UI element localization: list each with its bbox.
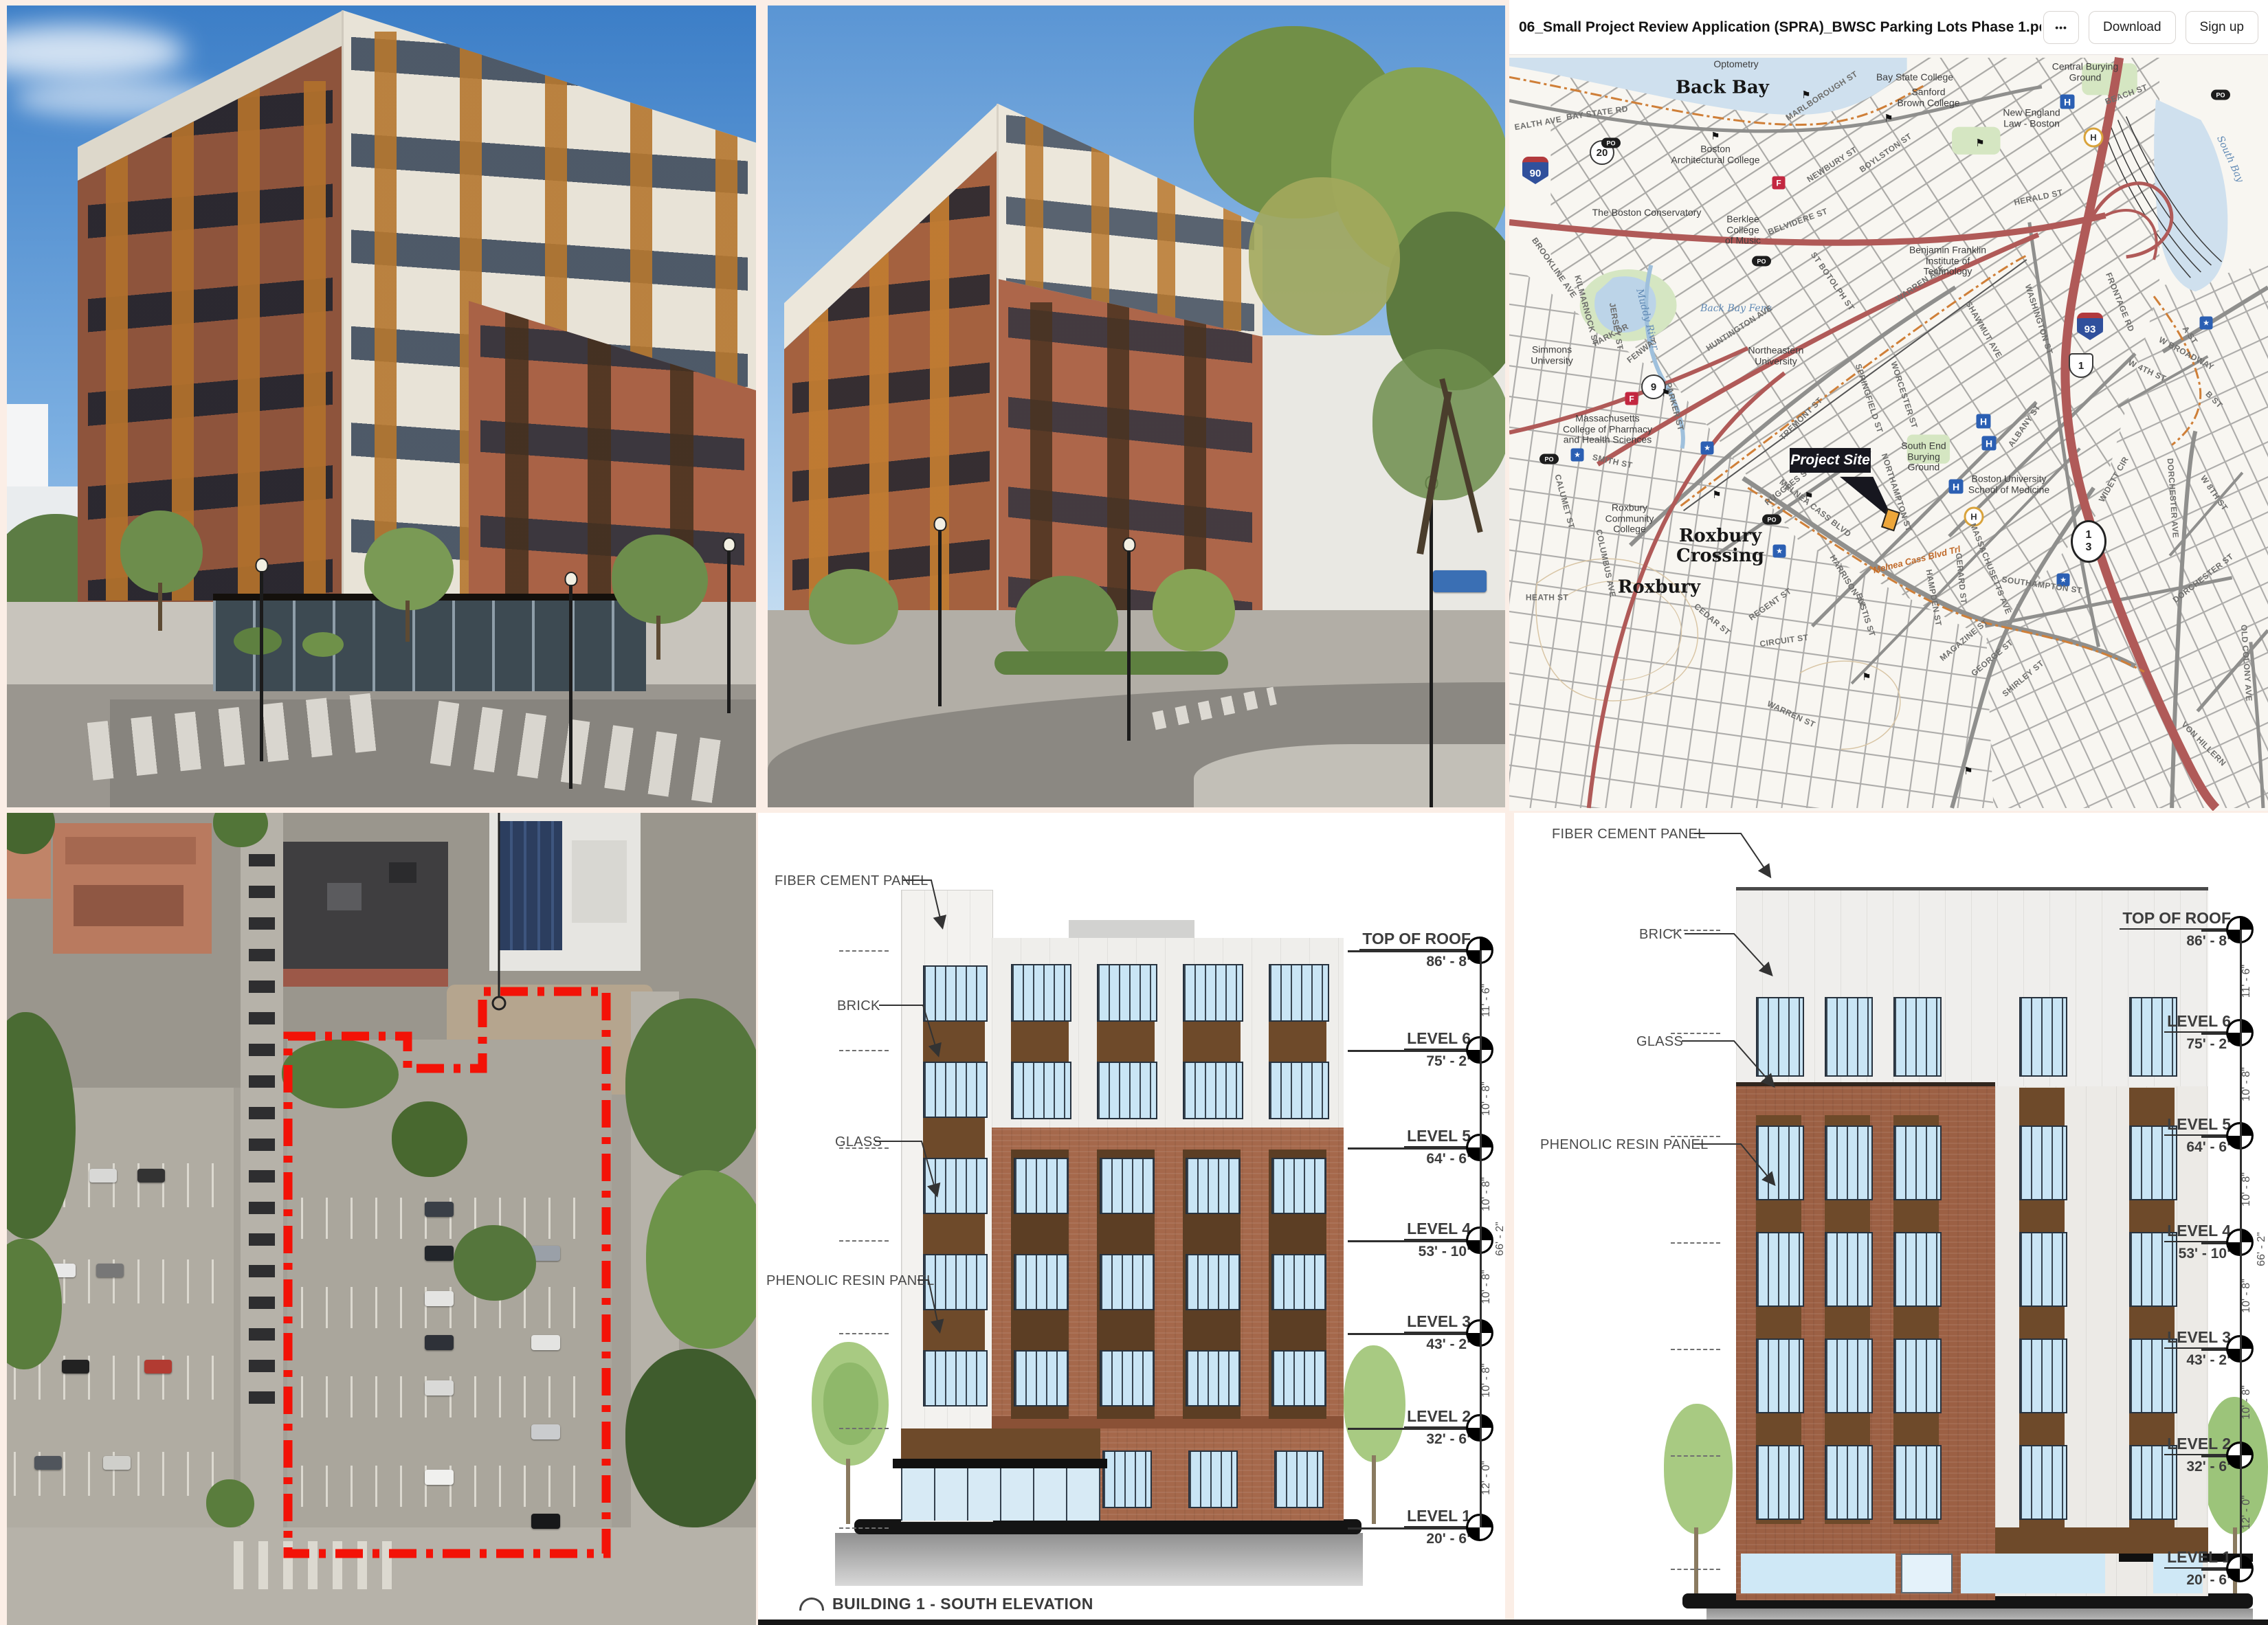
map-label: Massachusetts College of Pharmacy and He…: [1563, 413, 1652, 445]
map-label: EUSTIS ST: [1854, 592, 1876, 638]
level-annotations: TOP OF ROOF86' - 8"11' - 6"LEVEL 675' - …: [758, 813, 1505, 1625]
level-label: LEVEL 2: [2164, 1435, 2234, 1455]
map-label: KILMARNOCK ST: [1572, 274, 1600, 347]
project-site-callout: Project Site: [1790, 448, 1871, 473]
map-label: NEWBURY ST: [1805, 145, 1859, 184]
map-label: WORCESTER ST: [1889, 361, 1919, 430]
map-label: Roxbury Community College: [1605, 502, 1654, 535]
street-lamp: [1430, 486, 1433, 807]
overall-height-dim: 66' - 2": [2256, 1232, 2268, 1266]
pdf-title: 06_Small Project Review Application (SPR…: [1519, 19, 2041, 36]
map-label: JERSEY ST: [1607, 302, 1624, 351]
map-label: COLUMBUS AVE: [1594, 528, 1617, 598]
map-label: WASHINGTON ST: [2023, 283, 2054, 355]
floor-height-dim: 10' - 8": [2241, 1172, 2253, 1207]
map-label: ST BOTOLPH ST: [1809, 251, 1856, 313]
street-lamp: [727, 548, 731, 713]
map-label: TREMONT ST: [1778, 396, 1824, 442]
street-lamp: [1127, 548, 1131, 741]
detail-marker-icon: [799, 1598, 824, 1611]
overall-height-dim: 66' - 2": [1494, 1222, 1505, 1256]
ellipsis-icon: •••: [2055, 22, 2067, 33]
floor-height-dim: 10' - 8": [1480, 1363, 1493, 1398]
window-bottom-edge: [758, 1620, 2268, 1625]
map-label: Back Bay Fens: [1700, 304, 1772, 315]
street-lamp: [938, 528, 942, 706]
map-label: Sanford Brown College: [1897, 87, 1959, 108]
map-label: HEATH ST: [1526, 593, 1568, 602]
map-label: Boston University School of Medicine: [1968, 473, 2049, 495]
level-annotations: TOP OF ROOF86' - 8"11' - 6"LEVEL 675' - …: [1514, 813, 2268, 1625]
map-label: CIRCUIT ST: [1759, 633, 1810, 649]
floor-height-dim: 10' - 8": [1480, 1177, 1493, 1211]
map-label: BELVIDERE ST: [1767, 207, 1829, 237]
map-label: Berklee College of Music: [1725, 214, 1761, 246]
map-label: GEORGE ST: [1970, 638, 2015, 678]
map-label: Boston Architectural College: [1671, 144, 1759, 165]
site-boundary: [7, 813, 756, 1625]
map-label: BROOKLINE AVE: [1530, 236, 1579, 300]
level-label: LEVEL 3: [1404, 1312, 1474, 1333]
map-label: SMITH ST: [1592, 453, 1634, 470]
floor-height-dim: 10' - 8": [1480, 1082, 1493, 1116]
floor-height-dim: 10' - 8": [2241, 1385, 2253, 1420]
map-label: Muddy River: [1634, 288, 1660, 351]
map-label: CALUMET ST: [1553, 473, 1576, 530]
map-label: Benjamin Franklin Institute of Technolog…: [1909, 245, 1986, 277]
floor-height-dim: 11' - 6": [1480, 983, 1493, 1016]
download-button[interactable]: Download: [2089, 11, 2176, 44]
level-label: LEVEL 1: [2164, 1548, 2234, 1569]
screenshot-root: 06_Small Project Review Application (SPR…: [0, 0, 2268, 1625]
map-label: HERALD ST: [2013, 188, 2063, 208]
map-label: MELNEA CASS BLVD: [1777, 478, 1852, 539]
floor-height-dim: 12' - 0": [2241, 1495, 2253, 1529]
signup-button[interactable]: Sign up: [2186, 11, 2258, 44]
level-label: LEVEL 2: [1404, 1407, 1474, 1428]
map-label: SHIRLEY ST: [2001, 659, 2046, 699]
map-label: Optometry: [1713, 59, 1758, 70]
level-label: TOP OF ROOF: [2120, 909, 2234, 930]
map-label: HUNTINGTON AVE: [1704, 304, 1774, 353]
floor-height-dim: 10' - 8": [1480, 1270, 1493, 1304]
map-label: SPRINGFIELD ST: [1853, 363, 1884, 434]
map-label: DORCHESTER ST: [2171, 552, 2235, 605]
elevation-drawing-south: FIBER CEMENT PANEL BRICK GLASS PHENOLIC …: [758, 813, 1505, 1625]
hedge: [994, 651, 1228, 675]
map-label: Melnea Cass Blvd Trl: [1872, 544, 1961, 576]
map-label: Roxbury Crossing: [1676, 526, 1764, 566]
map-label: WIDETT CIR: [2098, 456, 2131, 504]
map-label: Simmons University: [1531, 344, 1572, 366]
map-labels: Back BayOptometryMARLBOROUGH STBAY STATE…: [1509, 55, 2268, 811]
more-options-button[interactable]: •••: [2043, 11, 2079, 44]
map-label: BAY STATE RD: [1566, 104, 1628, 122]
map-label: SHAWMUT AVE: [1964, 300, 2003, 359]
map-label: Back Bay: [1676, 78, 1769, 98]
map-label: VON HILLERN: [2179, 720, 2227, 768]
rendering-corner-view-2: [768, 5, 1505, 807]
level-label: LEVEL 6: [2164, 1012, 2234, 1033]
map-label: Bay State College: [1876, 72, 1953, 83]
map-label: The Boston Conservatory: [1592, 208, 1702, 218]
map-label: ALBANY ST: [2007, 403, 2043, 449]
floor-height-dim: 10' - 8": [2241, 1067, 2253, 1101]
map-label: PARK DR: [1592, 322, 1630, 348]
map-label: EALTH AVE: [1514, 115, 1563, 132]
map-label: DORCHESTER AVE: [2165, 458, 2180, 539]
level-label: LEVEL 4: [1404, 1220, 1474, 1240]
street-lamp: [260, 569, 263, 761]
map-label: Northeastern University: [1748, 345, 1804, 366]
level-label: LEVEL 6: [1404, 1029, 1474, 1050]
floor-height-dim: 11' - 6": [2241, 965, 2253, 998]
level-label: LEVEL 3: [2164, 1328, 2234, 1349]
map-label: B ST: [2203, 390, 2224, 410]
pdf-toolbar: 06_Small Project Review Application (SPR…: [1509, 0, 2268, 55]
map-label: BOYLSTON ST: [1858, 132, 1913, 175]
map-label: OLD COLONY AVE: [2238, 625, 2253, 702]
map-label: FENWAY: [1625, 336, 1660, 366]
map-label: A ST: [2180, 324, 2199, 346]
map-label: Central Burying Ground: [2052, 61, 2119, 82]
floor-height-dim: 12' - 0": [1480, 1461, 1493, 1495]
map-label: BEACH ST: [2104, 83, 2148, 107]
street-lamp: [569, 583, 572, 789]
floor-height-dim: 10' - 8": [2241, 1279, 2253, 1313]
map-label: W 8TH ST: [2199, 474, 2230, 513]
map-label: SOUTHAMPTON ST: [2001, 575, 2083, 596]
level-label: LEVEL 4: [2164, 1222, 2234, 1242]
map-label: South Bay: [2214, 135, 2245, 185]
level-label: LEVEL 5: [2164, 1115, 2234, 1136]
map-label: W BROADWAY: [2157, 335, 2216, 372]
map-label: South End Burying Ground: [1901, 440, 1946, 473]
level-label: TOP OF ROOF: [1359, 930, 1474, 950]
map-label: CEDAR ST: [1692, 602, 1732, 638]
map-label: W 4TH ST: [2126, 358, 2167, 383]
pdf-viewer: 06_Small Project Review Application (SPR…: [1509, 0, 2268, 811]
map-label: MAGAZINE ST: [1938, 618, 1990, 663]
map-label: Roxbury: [1618, 577, 1700, 597]
level-label: LEVEL 5: [1404, 1127, 1474, 1147]
aerial-site-view: [7, 813, 756, 1625]
map-label: New England Law - Boston: [2003, 107, 2060, 128]
map-label: WARREN AVE: [1894, 263, 1947, 304]
map-label: MASSACHUSETTS AVE: [1968, 522, 2012, 616]
drawing-caption: BUILDING 1 - SOUTH ELEVATION: [799, 1595, 1093, 1613]
level-label: LEVEL 1: [1404, 1507, 1474, 1527]
map-label: PARKER ST: [1663, 381, 1685, 432]
map-label: REGENT ST: [1748, 587, 1794, 623]
elevation-drawing-second: FIBER CEMENT PANEL BRICK GLASS PHENOLIC …: [1514, 813, 2268, 1625]
site-location-map[interactable]: 9093120913HHHHHH★★★★★POPOPOPOPOFF⚑⚑⚑⚑⚑⚑⚑…: [1509, 55, 2268, 811]
map-label: FRONTAGE RD: [2104, 271, 2136, 333]
rendering-corner-view-1: [7, 5, 756, 807]
map-label: GERARD ST: [1953, 552, 1968, 604]
map-label: MARLBOROUGH ST: [1784, 69, 1859, 122]
map-label: HAMPDEN ST: [1924, 569, 1943, 627]
map-label: HARRISON AV: [1827, 554, 1867, 609]
map-label: WARREN ST: [1766, 699, 1816, 730]
parked-car: [1433, 570, 1487, 592]
